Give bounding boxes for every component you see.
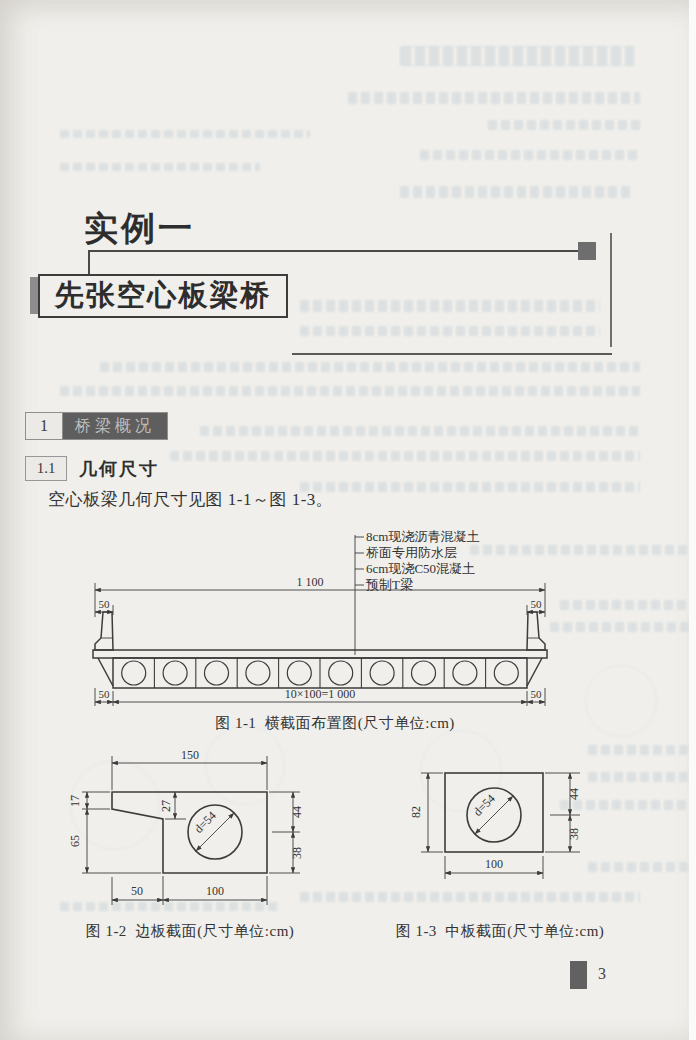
- bleedthrough-artifact: [60, 163, 260, 171]
- figure-1-1-cross-section-drawing: 8cm现浇沥青混凝土 桥面专用防水层 6cm现浇C50混凝土 预制T梁 1 10…: [60, 525, 656, 711]
- edge-slab-outline: [112, 792, 267, 873]
- deck-slab: [93, 650, 547, 658]
- section-1-1-number: 1.1: [25, 456, 67, 481]
- right-barrier: [527, 612, 545, 650]
- bleedthrough-artifact: [400, 46, 634, 66]
- bleedthrough-artifact: [300, 482, 640, 492]
- dim-left-lower: 65: [68, 835, 82, 847]
- dim-bottom-right: 100: [206, 884, 224, 898]
- dim-bottom: 100: [485, 857, 503, 871]
- bleedthrough-artifact: [400, 186, 632, 198]
- dim-edge-right-top: 50: [531, 598, 543, 610]
- bridge-section-outline: [93, 612, 547, 688]
- section-1-1-header: 1.1 几何尺寸: [25, 456, 159, 481]
- scan-edge: [689, 0, 696, 1040]
- bleedthrough-artifact: [300, 300, 600, 312]
- bleedthrough-artifact: [420, 150, 640, 160]
- title-connector-vertical: [88, 250, 90, 276]
- book-page: 实例一 先张空心板梁桥 1 桥梁概况 1.1 几何尺寸 空心板梁几何尺寸见图 1…: [0, 0, 696, 1040]
- dim-top: 150: [181, 748, 199, 762]
- section-1-title: 桥梁概况: [63, 413, 167, 439]
- example-title: 实例一: [84, 206, 195, 252]
- section-1-1-title: 几何尺寸: [79, 457, 159, 481]
- dim-bottom-left: 50: [131, 884, 143, 898]
- dim-right-upper: 44: [290, 806, 304, 818]
- bleedthrough-artifact: [300, 326, 600, 336]
- dim-right-upper: 44: [567, 788, 581, 800]
- page-number-marker: [570, 961, 587, 989]
- callout-asphalt: 8cm现浇沥青混凝土: [366, 529, 479, 544]
- left-barrier: [95, 612, 113, 650]
- figure-1-3-middle-slab-drawing: 82 44 38 100 d=54: [400, 755, 620, 913]
- dim-edge-right-bottom: 50: [531, 688, 543, 700]
- bleedthrough-artifact: [170, 451, 640, 461]
- decorative-horizontal-rule: [292, 353, 612, 355]
- title-connector-horizontal: [88, 250, 582, 252]
- dim-right-lower: 38: [567, 828, 581, 840]
- bleedthrough-artifact: [488, 120, 640, 130]
- dim-edge-left-top: 50: [99, 598, 111, 610]
- dim-left: 82: [409, 806, 423, 818]
- dim-overall: 1 100: [297, 575, 324, 589]
- bleedthrough-artifact: [60, 130, 310, 138]
- title-end-square: [578, 242, 596, 260]
- dim-left-upper: 17: [68, 795, 82, 807]
- dim-slabs: 10×100=1 000: [285, 687, 356, 701]
- section-1-header: 1 桥梁概况: [25, 412, 168, 440]
- figure-1-2-caption: 图 1-2 边板截面(尺寸单位:cm): [40, 922, 340, 941]
- dim-flange: 27: [159, 800, 173, 812]
- dim-right-lower: 38: [290, 847, 304, 859]
- section-1-number: 1: [26, 413, 63, 439]
- figure-1-3-caption: 图 1-3 中板截面(尺寸单位:cm): [370, 922, 630, 941]
- callout-c50: 6cm现浇C50混凝土: [366, 561, 475, 576]
- intro-paragraph: 空心板梁几何尺寸见图 1-1～图 1-3。: [48, 488, 333, 511]
- bleedthrough-artifact: [200, 426, 640, 436]
- page-number: 3: [598, 965, 606, 983]
- decorative-vertical-rule: [610, 233, 612, 347]
- bridge-title: 先张空心板梁桥: [38, 274, 288, 318]
- callout-precast: 预制T梁: [365, 577, 413, 592]
- figure-1-1-caption: 图 1-1 横截面布置图(尺寸单位:cm): [160, 714, 510, 733]
- figure-1-2-edge-slab-drawing: 17 65 27 44 38 150 50 100 d=54: [60, 745, 340, 913]
- bleedthrough-artifact: [60, 386, 640, 396]
- bleedthrough-artifact: [348, 92, 640, 104]
- dim-edge-left-bottom: 50: [99, 688, 111, 700]
- bleedthrough-artifact: [588, 745, 690, 755]
- callout-waterproof: 桥面专用防水层: [366, 545, 457, 560]
- bleedthrough-artifact: [100, 362, 640, 372]
- middle-slab-outline: [445, 773, 543, 852]
